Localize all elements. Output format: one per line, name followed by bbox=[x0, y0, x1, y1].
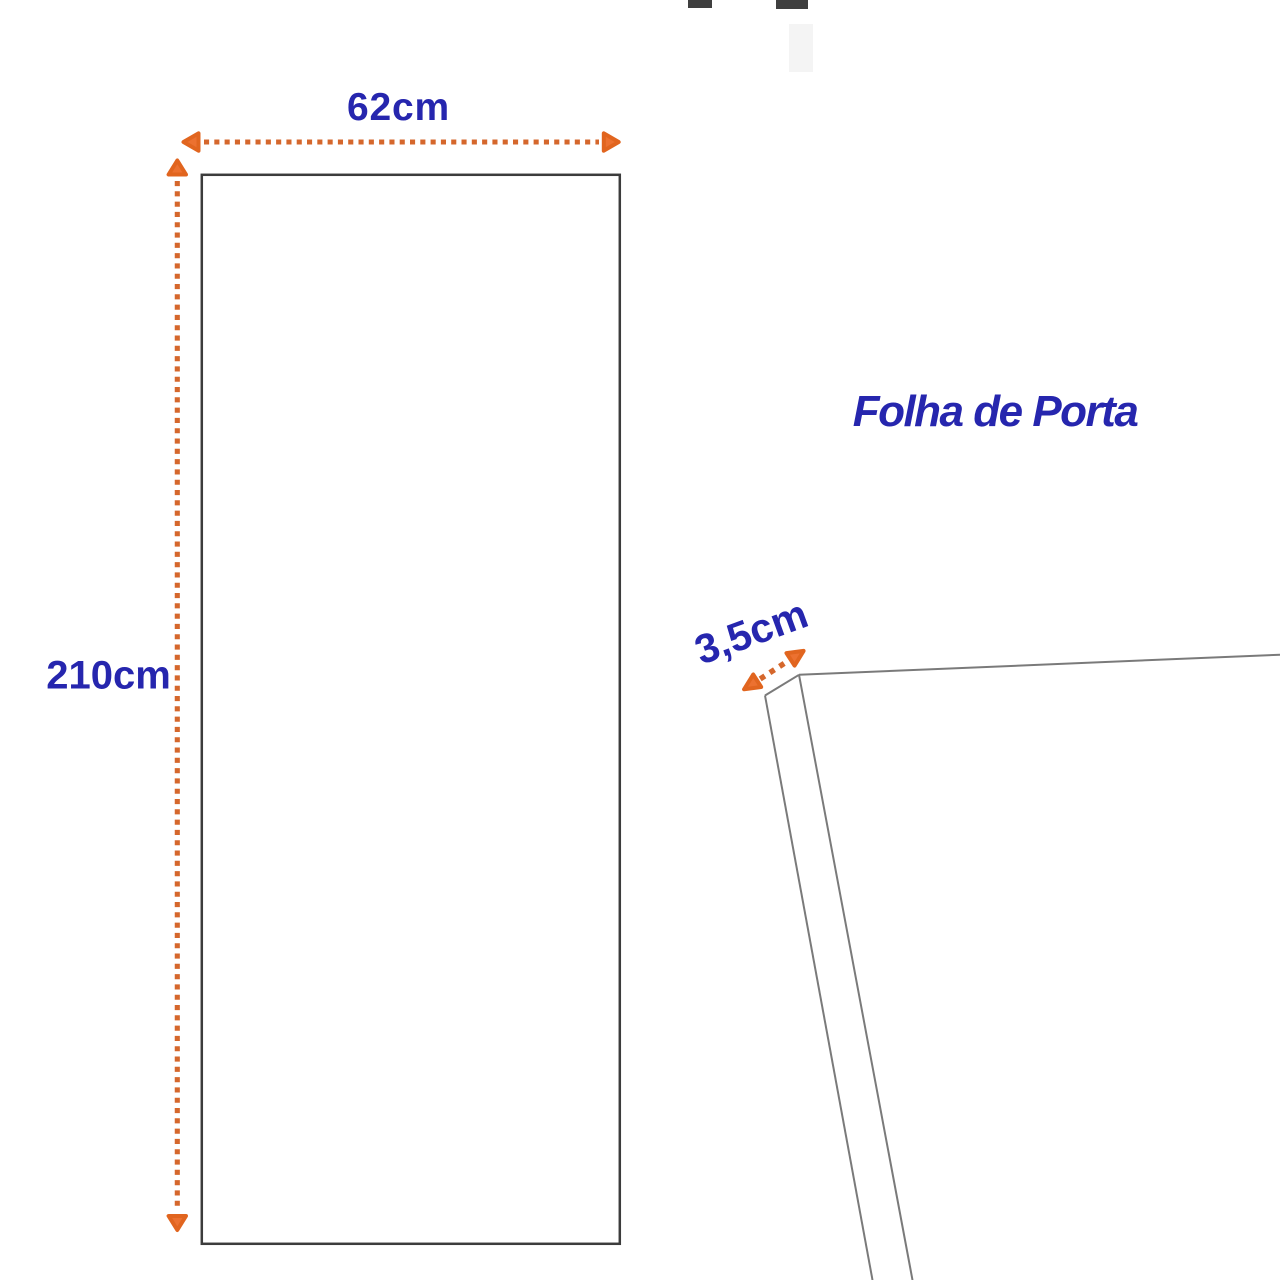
svg-text:Folha de Porta: Folha de Porta bbox=[853, 387, 1139, 436]
svg-text:62cm: 62cm bbox=[347, 86, 450, 129]
svg-text:210cm: 210cm bbox=[46, 654, 171, 698]
